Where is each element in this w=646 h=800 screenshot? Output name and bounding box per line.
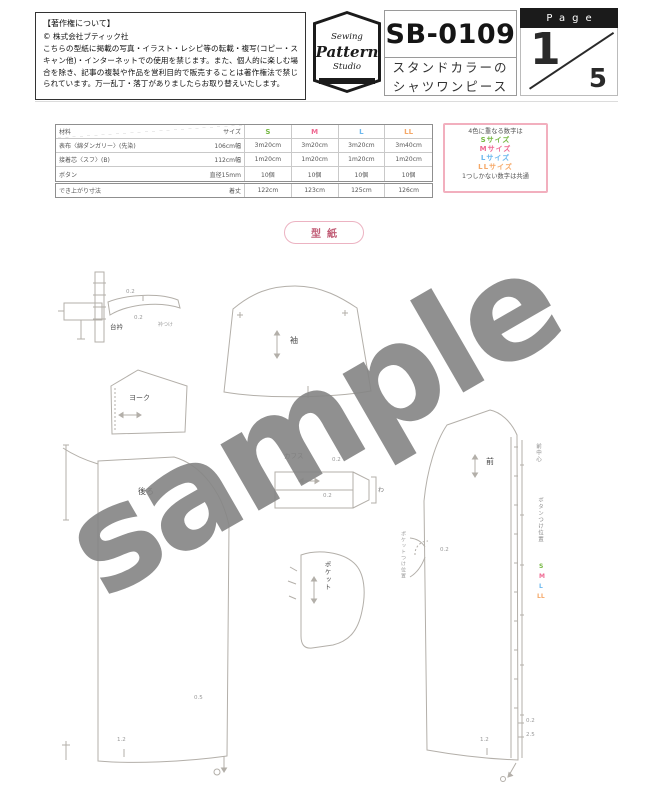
cell-value: 126cm xyxy=(385,184,432,197)
logo-line2: Pattern xyxy=(316,43,379,61)
edge-note: 0.2 xyxy=(526,718,535,724)
seam-note: 0.2 xyxy=(332,457,341,463)
size-color-legend: 4色に重なる数字は Sサイズ Mサイズ Lサイズ LLサイズ 1つしかない数字は… xyxy=(443,123,548,193)
logo-line1: Sewing xyxy=(331,32,363,42)
header-divider xyxy=(35,101,618,102)
table-row: 表布〈綿ダンガリー〉(先染) 106cm幅 3m20cm 3m20cm 3m20… xyxy=(56,139,432,153)
fold-mark: わ xyxy=(378,485,384,494)
cell-value: 3m40cm xyxy=(385,139,432,153)
table-row: でき上がり寸法 着丈 122cm 123cm 125cm 126cm xyxy=(56,184,432,197)
edge-note: 2.5 xyxy=(526,732,535,738)
size-mark-ll: LL xyxy=(537,593,545,600)
product-name-line1: スタンドカラーの xyxy=(392,59,508,78)
seam-note: 0.2 xyxy=(134,315,143,321)
finished-size-table: でき上がり寸法 着丈 122cm 123cm 125cm 126cm xyxy=(55,183,433,198)
pattern-pieces-drawing xyxy=(0,255,646,800)
product-code: SB-0109 xyxy=(385,11,516,58)
cell-value: 1m20cm xyxy=(292,153,339,167)
cell-value: 1m20cm xyxy=(245,153,292,167)
product-box: SB-0109 スタンドカラーの シャツワンピース xyxy=(384,10,517,96)
page-number-box: Page 1 5 xyxy=(520,8,618,96)
cell-value: 3m20cm xyxy=(292,139,339,153)
collar-band-label: 台衿 xyxy=(110,321,123,331)
yoke-label: ヨーク xyxy=(129,393,150,403)
legend-size-m: Mサイズ xyxy=(445,145,546,154)
materials-header-label: 材料 サイズ xyxy=(56,125,245,139)
size-mark-m: M xyxy=(539,573,545,580)
legend-bottom-line: 1つしかない数字は共通 xyxy=(445,173,546,181)
size-header-s: S xyxy=(245,125,292,139)
size-header-ll: LL xyxy=(385,125,432,139)
table-row: 接着芯〈スフ〉(B) 112cm幅 1m20cm 1m20cm 1m20cm 1… xyxy=(56,153,432,167)
pocket-position-note: ポケットつけ位置 xyxy=(400,531,407,579)
seam-note: 0.2 xyxy=(323,493,332,499)
materials-header-row: 材料 サイズ S M L LL xyxy=(56,125,432,139)
page-fraction: 1 5 xyxy=(520,28,618,96)
cell-value: 125cm xyxy=(339,184,386,197)
page-total: 5 xyxy=(589,64,607,94)
logo-line3: Studio xyxy=(333,62,361,72)
pattern-sheet-page: 【著作権について】 © 株式会社ブティック社 こちらの型紙に掲載の写真・イラスト… xyxy=(0,0,646,800)
legend-size-ll: LLサイズ xyxy=(445,163,546,172)
collar-attach-note: 衿つけ xyxy=(158,321,173,328)
cell-value: 3m20cm xyxy=(245,139,292,153)
logo-ribbon xyxy=(319,78,375,84)
cell-value: 123cm xyxy=(292,184,339,197)
cell-value: 1m20cm xyxy=(339,153,386,167)
product-name-line2: シャツワンピース xyxy=(393,78,508,97)
cell-value: 122cm xyxy=(245,184,292,197)
size-header-l: L xyxy=(339,125,386,139)
cell-value: 10個 xyxy=(385,167,432,181)
cell-value: 1m20cm xyxy=(385,153,432,167)
copyright-company: © 株式会社ブティック社 xyxy=(43,31,298,43)
copyright-title: 【著作権について】 xyxy=(43,18,298,30)
row-label: でき上がり寸法 着丈 xyxy=(56,184,245,197)
button-position-note: ボタンつけ位置 xyxy=(536,497,544,543)
front-center-note: 前中心 xyxy=(534,443,542,463)
front-label: 前 xyxy=(486,456,494,467)
cell-value: 10個 xyxy=(339,167,386,181)
materials-table: 材料 サイズ S M L LL 表布〈綿ダンガリー〉(先染) 106cm幅 3m… xyxy=(55,124,433,182)
pocket-label: ポケット xyxy=(322,561,332,591)
materials-header-left: 材料 xyxy=(59,127,71,136)
back-label: 後ろ xyxy=(138,486,154,497)
legend-size-s: Sサイズ xyxy=(445,136,546,145)
row-label: ボタン 直径15mm xyxy=(56,167,245,181)
cell-value: 10個 xyxy=(292,167,339,181)
page-current: 1 xyxy=(530,24,561,75)
row-label: 接着芯〈スフ〉(B) 112cm幅 xyxy=(56,153,245,167)
size-mark-l: L xyxy=(539,583,543,590)
corner-note: 0.5 xyxy=(194,695,203,701)
materials-header-size: サイズ xyxy=(223,127,241,136)
copyright-box: 【著作権について】 © 株式会社ブティック社 こちらの型紙に掲載の写真・イラスト… xyxy=(35,12,306,100)
table-row: ボタン 直径15mm 10個 10個 10個 10個 xyxy=(56,167,432,181)
cell-value: 10個 xyxy=(245,167,292,181)
hem-note: 1.2 xyxy=(480,737,489,743)
cuff-label: カフス xyxy=(284,450,304,460)
size-header-m: M xyxy=(292,125,339,139)
seam-note: 0.2 xyxy=(126,289,135,295)
size-mark-s: S xyxy=(539,563,543,570)
cell-value: 3m20cm xyxy=(339,139,386,153)
legend-top-line: 4色に重なる数字は xyxy=(445,128,546,136)
copyright-body: こちらの型紙に掲載の写真・イラスト・レシピ等の転載・複写(コピー・スキャン他)・… xyxy=(43,43,298,90)
row-label: 表布〈綿ダンガリー〉(先染) 106cm幅 xyxy=(56,139,245,153)
seam-note: 0.2 xyxy=(440,547,449,553)
sleeve-label: 袖 xyxy=(290,335,298,346)
brand-logo: Sewing Pattern Studio xyxy=(313,11,381,93)
pattern-tag-pill: 型紙 xyxy=(284,221,364,244)
pattern-drawing-area: 台衿 袖 ヨーク カフス ポケット 後ろ 前 0.2 0.2 衿つけ 0.2 0… xyxy=(0,255,646,800)
product-name: スタンドカラーの シャツワンピース xyxy=(385,58,516,97)
hem-note: 1.2 xyxy=(117,737,126,743)
